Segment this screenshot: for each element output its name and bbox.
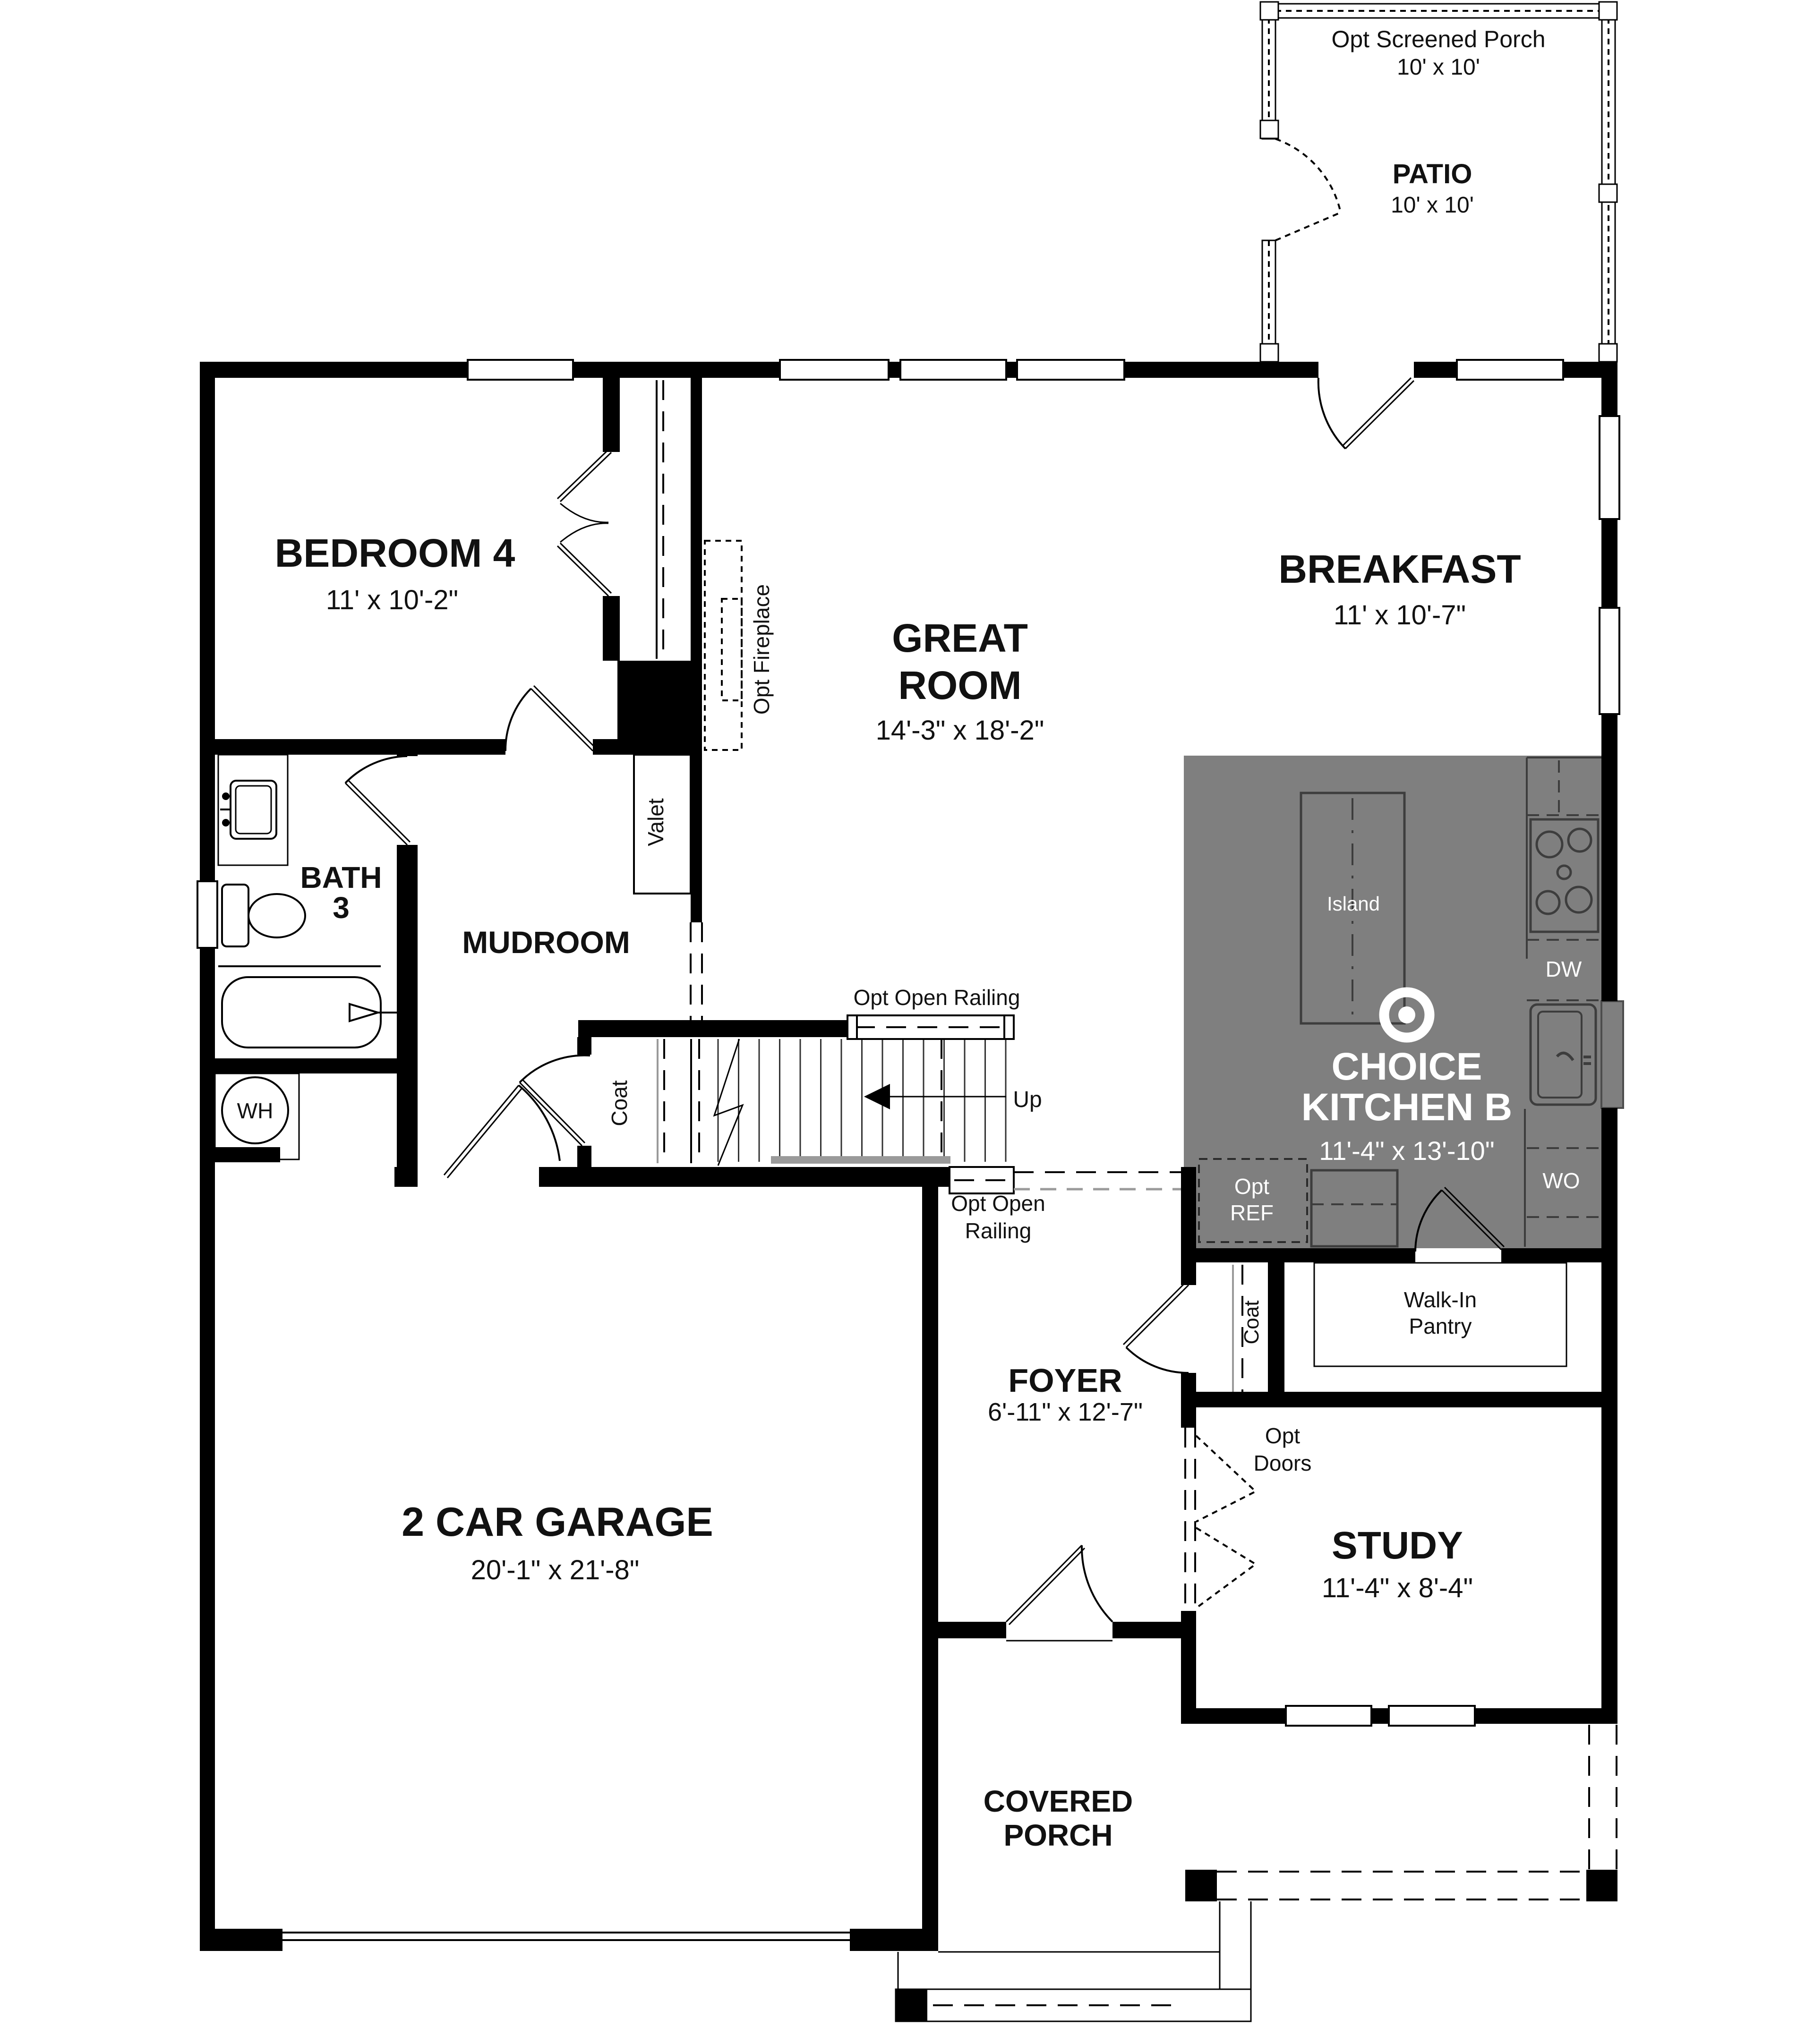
svg-text:Opt: Opt bbox=[1265, 1423, 1300, 1448]
svg-text:14'-3" x 18'-2": 14'-3" x 18'-2" bbox=[876, 715, 1044, 746]
svg-text:10' x 10': 10' x 10' bbox=[1391, 193, 1474, 218]
svg-text:Up: Up bbox=[1013, 1087, 1042, 1112]
svg-text:REF: REF bbox=[1230, 1201, 1274, 1225]
svg-text:STUDY: STUDY bbox=[1332, 1524, 1463, 1567]
svg-text:COVERED: COVERED bbox=[984, 1784, 1133, 1818]
svg-text:Island: Island bbox=[1327, 893, 1380, 915]
svg-text:20'-1" x 21'-8": 20'-1" x 21'-8" bbox=[471, 1555, 640, 1585]
svg-text:FOYER: FOYER bbox=[1008, 1362, 1122, 1399]
svg-text:Valet: Valet bbox=[643, 798, 668, 846]
svg-text:WO: WO bbox=[1542, 1168, 1580, 1193]
svg-text:Opt Open: Opt Open bbox=[951, 1191, 1045, 1216]
svg-text:Opt Screened Porch: Opt Screened Porch bbox=[1331, 26, 1545, 52]
svg-text:PORCH: PORCH bbox=[1003, 1818, 1112, 1852]
svg-text:BREAKFAST: BREAKFAST bbox=[1278, 547, 1521, 591]
svg-text:3: 3 bbox=[333, 891, 350, 925]
svg-text:MUDROOM: MUDROOM bbox=[462, 925, 630, 960]
svg-text:Walk-In: Walk-In bbox=[1404, 1287, 1477, 1312]
svg-text:11' x 10'-2": 11' x 10'-2" bbox=[326, 585, 458, 615]
svg-text:KITCHEN B: KITCHEN B bbox=[1301, 1086, 1512, 1129]
svg-text:Opt Fireplace: Opt Fireplace bbox=[749, 584, 774, 715]
svg-text:11' x 10'-7": 11' x 10'-7" bbox=[1334, 600, 1466, 630]
svg-text:2 CAR GARAGE: 2 CAR GARAGE bbox=[402, 1499, 713, 1545]
svg-text:11'-4" x 8'-4": 11'-4" x 8'-4" bbox=[1322, 1573, 1473, 1603]
svg-text:Coat: Coat bbox=[607, 1080, 632, 1126]
svg-text:10' x 10': 10' x 10' bbox=[1397, 55, 1480, 80]
svg-text:WH: WH bbox=[237, 1099, 274, 1123]
svg-text:11'-4" x 13'-10": 11'-4" x 13'-10" bbox=[1319, 1136, 1494, 1166]
svg-text:Pantry: Pantry bbox=[1409, 1314, 1472, 1338]
svg-text:BEDROOM 4: BEDROOM 4 bbox=[275, 531, 515, 575]
svg-text:PATIO: PATIO bbox=[1393, 159, 1472, 189]
svg-text:6'-11" x 12'-7": 6'-11" x 12'-7" bbox=[988, 1398, 1143, 1426]
svg-text:Coat: Coat bbox=[1240, 1301, 1263, 1345]
svg-text:Railing: Railing bbox=[965, 1218, 1032, 1243]
svg-text:BATH: BATH bbox=[300, 860, 382, 894]
svg-text:Doors: Doors bbox=[1254, 1451, 1312, 1475]
svg-text:ROOM: ROOM bbox=[898, 663, 1021, 707]
svg-text:Opt Open Railing: Opt Open Railing bbox=[854, 985, 1020, 1010]
svg-text:DW: DW bbox=[1546, 957, 1582, 981]
svg-text:GREAT: GREAT bbox=[892, 616, 1028, 660]
svg-text:CHOICE: CHOICE bbox=[1332, 1045, 1482, 1088]
svg-text:Opt: Opt bbox=[1234, 1174, 1269, 1199]
